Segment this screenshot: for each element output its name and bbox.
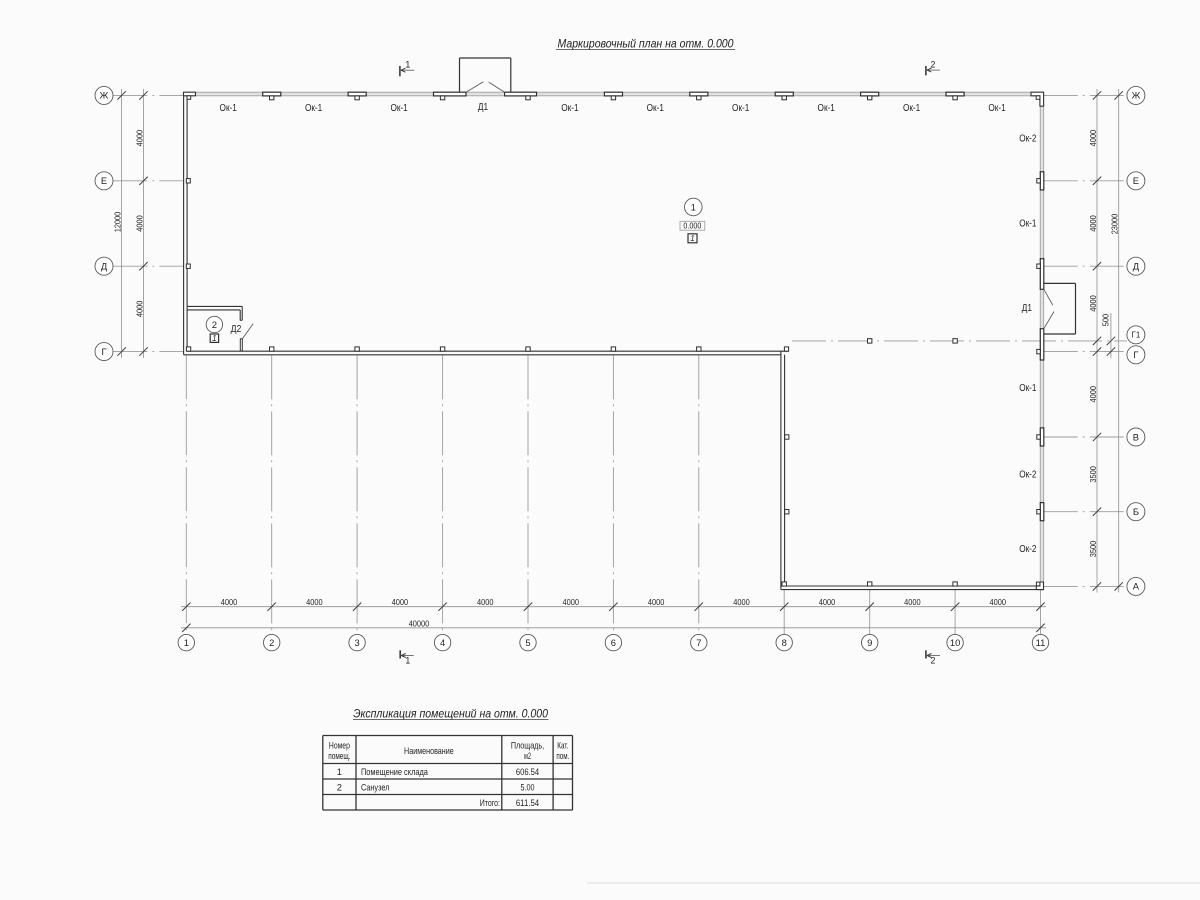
svg-text:Г: Г xyxy=(101,346,106,357)
svg-text:2: 2 xyxy=(930,656,935,666)
svg-text:4000: 4000 xyxy=(392,598,409,607)
svg-text:Ок-1: Ок-1 xyxy=(305,103,323,114)
svg-text:Ок-2: Ок-2 xyxy=(1019,544,1037,555)
svg-text:4000: 4000 xyxy=(135,129,144,146)
svg-text:Ок-1: Ок-1 xyxy=(1019,383,1037,394)
svg-text:Ок-1: Ок-1 xyxy=(647,103,665,114)
svg-text:4000: 4000 xyxy=(221,598,238,607)
svg-text:Ок-1: Ок-1 xyxy=(220,103,238,114)
svg-text:Ж: Ж xyxy=(1132,90,1141,101)
svg-text:Д: Д xyxy=(101,261,108,272)
svg-text:2: 2 xyxy=(212,320,217,331)
svg-text:3500: 3500 xyxy=(1089,466,1098,483)
svg-text:4000: 4000 xyxy=(306,598,323,607)
svg-text:4000: 4000 xyxy=(1089,386,1098,403)
svg-text:1: 1 xyxy=(184,637,189,648)
svg-text:3500: 3500 xyxy=(1089,540,1098,557)
svg-text:Д: Д xyxy=(1133,261,1140,272)
svg-text:4000: 4000 xyxy=(135,300,144,317)
svg-text:Г1: Г1 xyxy=(1132,331,1141,340)
svg-text:10: 10 xyxy=(950,637,960,648)
svg-text:В: В xyxy=(1133,431,1139,442)
svg-text:4000: 4000 xyxy=(648,598,665,607)
svg-text:1: 1 xyxy=(690,234,694,243)
svg-text:Итого:: Итого: xyxy=(480,797,500,808)
svg-text:2: 2 xyxy=(930,60,935,70)
svg-text:1: 1 xyxy=(337,766,342,777)
svg-text:8: 8 xyxy=(782,637,787,648)
svg-text:5.00: 5.00 xyxy=(521,781,535,792)
svg-text:1: 1 xyxy=(405,656,410,666)
svg-text:4000: 4000 xyxy=(1089,295,1098,312)
svg-text:4000: 4000 xyxy=(562,598,579,607)
svg-text:Экспликация помещений на отм.: Экспликация помещений на отм. 0.000 xyxy=(353,708,548,721)
svg-text:4000: 4000 xyxy=(904,598,921,607)
svg-text:5: 5 xyxy=(525,637,530,648)
svg-text:0.000: 0.000 xyxy=(683,222,701,231)
svg-text:3: 3 xyxy=(354,637,359,648)
svg-text:1: 1 xyxy=(691,202,696,213)
svg-text:Ок-2: Ок-2 xyxy=(1019,133,1037,144)
svg-text:9: 9 xyxy=(867,637,872,648)
svg-text:23000: 23000 xyxy=(1111,213,1120,234)
svg-text:4: 4 xyxy=(440,637,445,648)
svg-text:40000: 40000 xyxy=(409,620,430,629)
svg-text:4000: 4000 xyxy=(990,598,1007,607)
svg-text:Б: Б xyxy=(1133,506,1139,517)
svg-text:11: 11 xyxy=(1036,637,1046,648)
svg-text:Е: Е xyxy=(101,175,107,186)
svg-text:Маркировочный план на отм. 0.0: Маркировочный план на отм. 0.000 xyxy=(558,37,734,50)
svg-text:1: 1 xyxy=(405,60,410,70)
svg-text:Ок-1: Ок-1 xyxy=(988,103,1006,114)
svg-text:12000: 12000 xyxy=(114,211,123,232)
svg-text:Ок-1: Ок-1 xyxy=(818,103,836,114)
svg-text:6: 6 xyxy=(611,637,616,648)
svg-text:Ок-1: Ок-1 xyxy=(561,103,579,114)
svg-text:Номер: Номер xyxy=(329,740,350,751)
svg-text:2: 2 xyxy=(337,781,342,792)
svg-text:1: 1 xyxy=(212,334,216,343)
svg-text:611.54: 611.54 xyxy=(516,797,539,808)
svg-text:Ок-1: Ок-1 xyxy=(903,103,921,114)
svg-text:Ок-1: Ок-1 xyxy=(1019,219,1037,230)
svg-text:7: 7 xyxy=(696,637,701,648)
svg-text:500: 500 xyxy=(1102,313,1111,326)
svg-text:2: 2 xyxy=(269,637,274,648)
svg-text:Д2: Д2 xyxy=(231,324,242,335)
svg-text:Площадь,: Площадь, xyxy=(511,740,544,751)
svg-text:Санузел: Санузел xyxy=(361,781,389,792)
svg-text:4000: 4000 xyxy=(1089,215,1098,232)
svg-text:Ок-1: Ок-1 xyxy=(732,103,750,114)
svg-text:Д1: Д1 xyxy=(1022,303,1032,314)
svg-text:4000: 4000 xyxy=(1089,129,1098,146)
svg-text:Ж: Ж xyxy=(100,90,109,101)
svg-text:Д1: Д1 xyxy=(478,102,488,113)
svg-text:4000: 4000 xyxy=(477,598,494,607)
svg-text:4000: 4000 xyxy=(733,598,750,607)
svg-text:м2: м2 xyxy=(524,750,531,761)
svg-text:пом.: пом. xyxy=(556,750,569,761)
svg-text:А: А xyxy=(1133,581,1140,592)
svg-text:Кат.: Кат. xyxy=(557,740,568,751)
svg-text:Ок-1: Ок-1 xyxy=(390,103,408,114)
svg-text:Помещение склада: Помещение склада xyxy=(361,766,429,777)
svg-text:Наименование: Наименование xyxy=(404,745,454,756)
svg-text:помещ.: помещ. xyxy=(328,750,350,761)
svg-text:4000: 4000 xyxy=(135,215,144,232)
svg-text:Г: Г xyxy=(1133,349,1138,360)
svg-text:Е: Е xyxy=(1133,175,1139,186)
svg-text:606.54: 606.54 xyxy=(516,766,539,777)
svg-text:Ок-2: Ок-2 xyxy=(1019,470,1037,481)
svg-text:4000: 4000 xyxy=(819,598,836,607)
